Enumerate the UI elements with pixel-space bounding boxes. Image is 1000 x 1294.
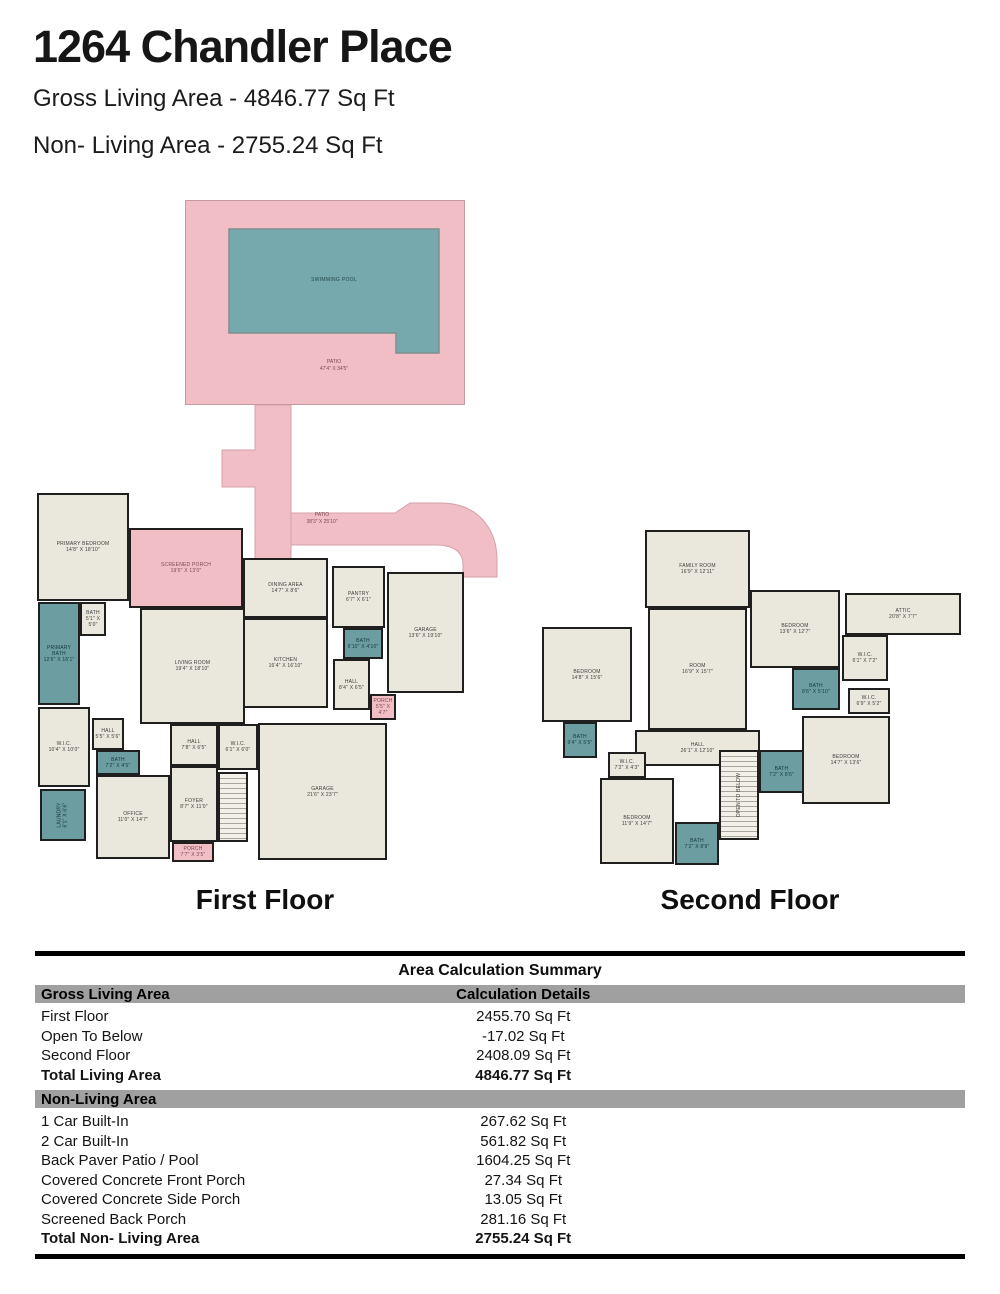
pantry: PANTRY6'7" X 6'1"	[332, 566, 385, 628]
living-room: LIVING ROOM19'4" X 18'10"	[140, 608, 245, 724]
office: OFFICE11'0" X 14'7"	[96, 775, 170, 859]
wic-2: W.I.C.6'1" X 6'0"	[218, 724, 258, 770]
second-floor-plan: FAMILY ROOM16'9" X 12'11"ROOM16'9" X 15'…	[535, 520, 965, 870]
row-value: 2755.24 Sq Ft	[361, 1229, 687, 1249]
room: ROOM16'9" X 15'7"	[648, 608, 747, 730]
row-value: 1604.25 Sq Ft	[361, 1151, 687, 1171]
patio-dims: 47'4" X 34'5"	[229, 366, 439, 373]
row-value: -17.02 Sq Ft	[361, 1027, 687, 1047]
calculation-details-header: Calculation Details	[361, 986, 687, 1003]
hall-small: HALL5'5" X 5'6"	[92, 718, 124, 750]
row-label: Total Living Area	[35, 1066, 361, 1086]
table-row: Covered Concrete Side Porch13.05 Sq Ft	[35, 1190, 965, 1210]
table-row: Total Non- Living Area2755.24 Sq Ft	[35, 1229, 965, 1249]
summary-table-body: Gross Living AreaCalculation DetailsFirs…	[35, 985, 965, 1254]
bath-4: BATH8'6" X 5'10"	[792, 668, 840, 710]
porch-front: PORCH7'7" X 3'5"	[172, 842, 214, 862]
row-value: 27.34 Sq Ft	[361, 1171, 687, 1191]
swimming-pool	[229, 229, 439, 353]
wic: W.I.C.10'4" X 10'0"	[38, 707, 90, 787]
table-row: Covered Concrete Front Porch27.34 Sq Ft	[35, 1171, 965, 1191]
table-row: Total Living Area4846.77 Sq Ft	[35, 1066, 965, 1086]
non-living-area-text: Non- Living Area - 2755.24 Sq Ft	[33, 131, 452, 161]
patio-area: SWIMMING POOL PATIO 47'4" X 34'5"	[185, 200, 465, 405]
pool-shape	[186, 201, 466, 406]
section-header-label: Non-Living Area	[35, 1091, 156, 1108]
bath-7: BATH7'2" X 8'6"	[759, 750, 804, 793]
section-header-label: Gross Living Area	[35, 986, 170, 1003]
stairs-open: OPEN TO BELOW	[719, 750, 759, 840]
row-value: 2408.09 Sq Ft	[361, 1046, 687, 1066]
table-row: Open To Below-17.02 Sq Ft	[35, 1027, 965, 1047]
bath-3: BATH6'10" X 4'10"	[343, 628, 383, 659]
row-label: Covered Concrete Front Porch	[35, 1171, 361, 1191]
swimming-pool-label: SWIMMING POOL	[229, 277, 439, 283]
row-label: Screened Back Porch	[35, 1210, 361, 1230]
row-label: 2 Car Built-In	[35, 1132, 361, 1152]
row-value: 267.62 Sq Ft	[361, 1112, 687, 1132]
summary-title: Area Calculation Summary	[35, 956, 965, 985]
foyer: FOYER8'7" X 11'0"	[170, 766, 218, 842]
first-floor-caption: First Floor	[30, 884, 500, 916]
page-title: 1264 Chandler Place	[33, 22, 452, 72]
wic-4: W.I.C.6'9" X 5'2"	[848, 688, 890, 714]
screened-porch: SCREENED PORCH19'0" X 13'0"	[129, 528, 243, 608]
row-value: 2455.70 Sq Ft	[361, 1007, 687, 1027]
primary-bedroom: PRIMARY BEDROOM14'8" X 18'10"	[37, 493, 129, 601]
family-room: FAMILY ROOM16'9" X 12'11"	[645, 530, 750, 608]
table-row: 2 Car Built-In561.82 Sq Ft	[35, 1132, 965, 1152]
table-row: Second Floor2408.09 Sq Ft	[35, 1046, 965, 1066]
row-label: Second Floor	[35, 1046, 361, 1066]
table-row: Back Paver Patio / Pool1604.25 Sq Ft	[35, 1151, 965, 1171]
row-label: Open To Below	[35, 1027, 361, 1047]
floor-plan-page: 1264 Chandler Place Gross Living Area - …	[0, 0, 1000, 1294]
wic-3: W.I.C.6'1" X 7'2"	[842, 635, 888, 681]
laundry: LAUNDRY6'1" X 6'6"	[40, 789, 86, 841]
primary-bath: PRIMARY BATH12'6" X 16'1"	[38, 602, 80, 705]
garage-1-car: GARAGE13'6" X 19'10"	[387, 572, 464, 693]
kitchen: KITCHEN16'4" X 16'10"	[243, 618, 328, 708]
second-floor-caption: Second Floor	[535, 884, 965, 916]
row-label: Total Non- Living Area	[35, 1229, 361, 1249]
table-row: 1 Car Built-In267.62 Sq Ft	[35, 1112, 965, 1132]
row-label: 1 Car Built-In	[35, 1112, 361, 1132]
garage-2-car: GARAGE21'6" X 23'7"	[258, 723, 387, 860]
area-calculation-summary: Area Calculation Summary Gross Living Ar…	[35, 951, 965, 1259]
first-floor-plan: PRIMARY BEDROOM14'8" X 18'10"SCREENED PO…	[30, 490, 500, 870]
bath-2: BATH7'2" X 4'5"	[96, 750, 140, 775]
row-value: 281.16 Sq Ft	[361, 1210, 687, 1230]
porch-side: PORCH5'5" X 4'7"	[370, 694, 396, 720]
wic-5: W.I.C.7'2" X 4'3"	[608, 752, 646, 778]
row-value: 13.05 Sq Ft	[361, 1190, 687, 1210]
section-rows: 1 Car Built-In267.62 Sq Ft2 Car Built-In…	[35, 1108, 965, 1254]
table-row: First Floor2455.70 Sq Ft	[35, 1007, 965, 1027]
stairs-first	[218, 772, 248, 842]
patio-label: PATIO 47'4" X 34'5"	[229, 359, 439, 373]
hall-2: HALL8'4" X 6'5"	[333, 659, 370, 710]
section-header-0: Gross Living AreaCalculation Details	[35, 985, 965, 1003]
bedroom-5: BEDROOM11'9" X 14'7"	[600, 778, 674, 864]
row-value: 4846.77 Sq Ft	[361, 1066, 687, 1086]
patio-name: PATIO	[229, 359, 439, 366]
row-label: Covered Concrete Side Porch	[35, 1190, 361, 1210]
table-row: Screened Back Porch281.16 Sq Ft	[35, 1210, 965, 1230]
bedroom-4: BEDROOM14'7" X 13'6"	[802, 716, 890, 804]
row-label: First Floor	[35, 1007, 361, 1027]
gross-living-area-text: Gross Living Area - 4846.77 Sq Ft	[33, 84, 452, 114]
header: 1264 Chandler Place Gross Living Area - …	[33, 22, 452, 161]
row-value: 561.82 Sq Ft	[361, 1132, 687, 1152]
bath-6: BATH7'2" X 8'9"	[675, 822, 719, 865]
row-label: Back Paver Patio / Pool	[35, 1151, 361, 1171]
bath-small: BATH5'1" X 5'0"	[80, 602, 106, 636]
bedroom-3: BEDROOM13'6" X 12'7"	[750, 590, 840, 668]
attic: ATTIC20'8" X 7'7"	[845, 593, 961, 635]
section-rows: First Floor2455.70 Sq FtOpen To Below-17…	[35, 1003, 965, 1090]
bath-5: BATH9'4" X 5'5"	[563, 722, 597, 758]
section-header-1: Non-Living Area	[35, 1090, 965, 1108]
dining-area: DINING AREA14'7" X 8'6"	[243, 558, 328, 618]
hall-3: HALL7'8" X 6'5"	[170, 724, 218, 766]
bedroom-2: BEDROOM14'8" X 15'6"	[542, 627, 632, 722]
